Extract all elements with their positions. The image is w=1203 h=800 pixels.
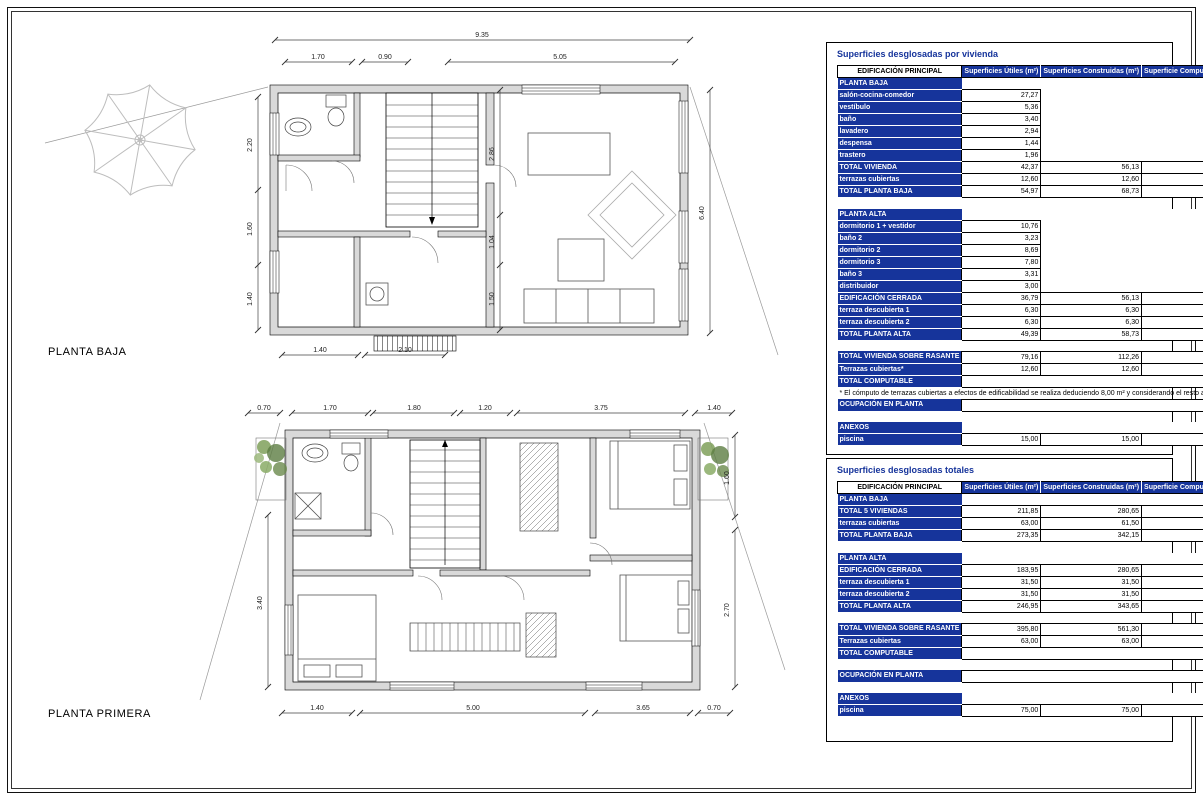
total-row: TOTAL VIVIENDA42,3756,1356,13: [838, 162, 1203, 174]
per-dwelling-table: EDIFICACIÓN PRINCIPALSuperficies Útiles …: [837, 65, 1172, 446]
row-label: ANEXOS: [838, 693, 962, 705]
dimension-label: 9.35: [475, 32, 489, 39]
cell-utiles: [962, 494, 1041, 506]
wardrobe: [520, 443, 558, 531]
stairs: [386, 93, 478, 227]
cell-construidas: 280,65: [1041, 564, 1142, 576]
terrace-hatch: [374, 336, 456, 351]
row-label: TOTAL 5 VIVIENDAS: [838, 506, 962, 518]
total-row: TOTAL VIVIENDA SOBRE RASANTE79,16112,261…: [838, 351, 1203, 363]
cell-utiles: 7,80: [962, 256, 1041, 268]
row-label: TOTAL PLANTA ALTA: [838, 328, 962, 340]
row-label: TOTAL PLANTA BAJA: [838, 186, 962, 198]
cell-construidas: [1041, 693, 1142, 705]
cell-construidas: 561,30: [1041, 623, 1142, 635]
row-label: terraza descubierta 1: [838, 304, 962, 316]
item-row: distribuidor3,00: [838, 280, 1203, 292]
total-row: TOTAL PLANTA ALTA246,95343,65259,25: [838, 600, 1203, 612]
total-row: TOTAL VIVIENDA SOBRE RASANTE395,80561,30…: [838, 623, 1203, 635]
row-label: TOTAL COMPUTABLE: [838, 647, 962, 659]
merged-total-row: OCUPACIÓN EN PLANTA68,90: [838, 399, 1203, 411]
section-row: ANEXOS: [838, 693, 1203, 705]
stairs: [410, 440, 480, 568]
cell-utiles: [962, 422, 1041, 434]
row-label: ANEXOS: [838, 422, 962, 434]
cell-computable: 259,25: [1142, 600, 1203, 612]
cell-construidas: 6,30: [1041, 316, 1142, 328]
cell-construidas: 342,15: [1041, 530, 1142, 542]
cell-computable: 0,00: [1142, 434, 1203, 446]
dimension-label: 1.60: [724, 471, 731, 485]
row-label: terrazas cubiertas: [838, 174, 962, 186]
row-label: PLANTA BAJA: [838, 78, 962, 90]
value-column-header: Superficie Computable (m²t): [1142, 66, 1203, 78]
row-label: PLANTA ALTA: [838, 553, 962, 565]
dimension-label: 3.40: [257, 596, 264, 610]
cell-computable: 0,00: [1142, 576, 1203, 588]
cell-computable: 11,50: [1142, 635, 1203, 647]
row-label: terraza descubierta 2: [838, 316, 962, 328]
cell-computable: [1142, 138, 1203, 150]
cell-construidas: 56,13: [1041, 162, 1142, 174]
cell-utiles: 3,40: [962, 114, 1041, 126]
row-label: distribuidor: [838, 280, 962, 292]
cell-construidas: [1041, 102, 1142, 114]
cell-construidas: 112,26: [1041, 351, 1142, 363]
cell-utiles: 42,37: [962, 162, 1041, 174]
item-row: trastero1,96: [838, 150, 1203, 162]
wardrobe-hangers: [410, 623, 520, 651]
section-row: ANEXOS: [838, 422, 1203, 434]
dimension-label: 0.90: [378, 54, 392, 61]
item-row: Terrazas cubiertas*12,6012,602,30: [838, 363, 1203, 375]
cell-computable: [1142, 553, 1203, 565]
total-row: TOTAL 5 VIVIENDAS211,85280,65280,65: [838, 506, 1203, 518]
spacer-row: [838, 340, 1203, 351]
cell-construidas: [1041, 280, 1142, 292]
row-label: OCUPACIÓN EN PLANTA: [838, 670, 962, 682]
cell-utiles: 5,36: [962, 102, 1041, 114]
cell-utiles: [962, 78, 1041, 90]
wardrobe: [526, 613, 556, 657]
edificacion-principal-header: EDIFICACIÓN PRINCIPAL: [838, 482, 962, 494]
cell-utiles: 54,97: [962, 186, 1041, 198]
item-row: terrazas cubiertas12,6012,602,30: [838, 174, 1203, 186]
cell-computable: [1142, 78, 1203, 90]
cell-computable: [1142, 90, 1203, 102]
cell-utiles: 12,60: [962, 363, 1041, 375]
sink-icon: [302, 444, 328, 462]
row-label: dormitorio 2: [838, 244, 962, 256]
table-header-row: EDIFICACIÓN PRINCIPALSuperficies Útiles …: [838, 66, 1203, 78]
row-label: Terrazas cubiertas*: [838, 363, 962, 375]
row-label: piscina: [838, 434, 962, 446]
item-row: vestíbulo5,36: [838, 102, 1203, 114]
cell-computable: [1142, 268, 1203, 280]
cell-utiles: 1,44: [962, 138, 1041, 150]
total-row: TOTAL PLANTA BAJA54,9768,7358,43: [838, 186, 1203, 198]
dimension-label: 1.60: [247, 222, 254, 236]
dimension-label: 1.20: [478, 405, 492, 412]
section-row: PLANTA ALTA: [838, 553, 1203, 565]
value-column-header: Superficies Útiles (m²): [962, 482, 1041, 494]
dimension-label: 5.00: [466, 705, 480, 712]
row-label: vestíbulo: [838, 102, 962, 114]
row-label: OCUPACIÓN EN PLANTA: [838, 399, 962, 411]
row-label: trastero: [838, 150, 962, 162]
row-label: TOTAL PLANTA ALTA: [838, 600, 962, 612]
cell-construidas: 68,73: [1041, 186, 1142, 198]
cell-construidas: 343,65: [1041, 600, 1142, 612]
item-row: despensa1,44: [838, 138, 1203, 150]
dimension-label: 1.40: [313, 347, 327, 354]
cell-computable: [1142, 114, 1203, 126]
section-row: PLANTA BAJA: [838, 494, 1203, 506]
cell-computable: [1142, 102, 1203, 114]
row-label: PLANTA ALTA: [838, 209, 962, 221]
cell-utiles: 8,69: [962, 244, 1041, 256]
section-row: PLANTA ALTA: [838, 209, 1203, 221]
item-row: baño 33,31: [838, 268, 1203, 280]
cell-computable: [1142, 280, 1203, 292]
cell-computable: [1142, 209, 1203, 221]
row-label: TOTAL VIVIENDA SOBRE RASANTE: [838, 623, 962, 635]
cell-computable: 2,30: [1142, 174, 1203, 186]
cell-construidas: 6,30: [1041, 304, 1142, 316]
cell-construidas: [1041, 78, 1142, 90]
cell-construidas: [1041, 232, 1142, 244]
cell-computable: [1142, 422, 1203, 434]
spacer-row: [838, 659, 1203, 670]
cell-construidas: 63,00: [1041, 635, 1142, 647]
cell-utiles: 3,23: [962, 232, 1041, 244]
cell-construidas: [1041, 138, 1142, 150]
dimension-label: 1.40: [247, 292, 254, 306]
cell-construidas: 12,60: [1041, 363, 1142, 375]
item-row: dormitorio 28,69: [838, 244, 1203, 256]
row-label: lavadero: [838, 126, 962, 138]
cell-computable: [1142, 232, 1203, 244]
item-row: Terrazas cubiertas63,0063,0011,50: [838, 635, 1203, 647]
table-header-row: EDIFICACIÓN PRINCIPALSuperficies Útiles …: [838, 482, 1203, 494]
item-row: piscina75,0075,000,00: [838, 705, 1203, 717]
cell-utiles: 63,00: [962, 635, 1041, 647]
item-row: terrazas cubiertas63,0061,5011,50: [838, 518, 1203, 530]
dimension-label: 3.75: [594, 405, 608, 412]
total-row: TOTAL PLANTA BAJA273,35342,15292,15: [838, 530, 1203, 542]
item-row: dormitorio 1 + vestidor10,76: [838, 220, 1203, 232]
cell-construidas: [1041, 268, 1142, 280]
parcel-boundary-line: [45, 87, 268, 143]
row-label: baño 2: [838, 232, 962, 244]
cell-computable: 0,00: [1142, 588, 1203, 600]
cell-construidas: [1041, 244, 1142, 256]
cell-computable: [1142, 126, 1203, 138]
cell-utiles: [962, 693, 1041, 705]
value-column-header: Superficies Construidas (m²): [1041, 482, 1142, 494]
spacer-row: [838, 612, 1203, 623]
cell-construidas: [1041, 126, 1142, 138]
spacer-row: [838, 682, 1203, 693]
cell-utiles: 15,00: [962, 434, 1041, 446]
total-row: TOTAL PLANTA ALTA49,3958,7351,85: [838, 328, 1203, 340]
cell-utiles: 31,50: [962, 588, 1041, 600]
value-column-header: Superficies Construidas (m²): [1041, 66, 1142, 78]
planta-primera-building: [254, 430, 729, 690]
sink-icon: [285, 118, 311, 136]
planta-primera-plan: 0.70 1.70 1.80 1.20 3.75 1.40 1.40 5.00 …: [30, 395, 820, 740]
row-label: TOTAL VIVIENDA SOBRE RASANTE: [838, 351, 962, 363]
spacer-row: [838, 411, 1203, 422]
row-label: terrazas cubiertas: [838, 518, 962, 530]
cell-utiles: [962, 553, 1041, 565]
dimension-label: 1.40: [707, 405, 721, 412]
parasol-icon: [85, 85, 195, 195]
cell-construidas: 61,50: [1041, 518, 1142, 530]
item-row: terraza descubierta 131,5031,500,00: [838, 576, 1203, 588]
totals-surfaces-panel: Superficies desglosadas totales EDIFICAC…: [826, 458, 1173, 742]
cell-utiles: 3,31: [962, 268, 1041, 280]
cell-computable: 51,85: [1142, 292, 1203, 304]
cell-construidas: [1041, 220, 1142, 232]
cell-construidas: 31,50: [1041, 576, 1142, 588]
merged-value: 551,40: [962, 647, 1203, 659]
plan-title-planta-primera: PLANTA PRIMERA: [48, 708, 151, 720]
dimension-label: 5.05: [553, 54, 567, 61]
merged-value: 110,28: [962, 375, 1203, 387]
cell-utiles: 31,50: [962, 576, 1041, 588]
row-label: PLANTA BAJA: [838, 494, 962, 506]
cell-construidas: 12,60: [1041, 174, 1142, 186]
row-label: piscina: [838, 705, 962, 717]
item-row: baño3,40: [838, 114, 1203, 126]
cell-construidas: 75,00: [1041, 705, 1142, 717]
spacer-row: [838, 542, 1203, 553]
cell-construidas: [1041, 553, 1142, 565]
row-label: baño 3: [838, 268, 962, 280]
shower: [295, 493, 321, 519]
row-label: EDIFICACIÓN CERRADA: [838, 292, 962, 304]
cell-utiles: 273,35: [962, 530, 1041, 542]
dimension-label: 1.40: [310, 705, 324, 712]
cell-construidas: [1041, 209, 1142, 221]
dimension-label: 1.80: [407, 405, 421, 412]
surface-table: EDIFICACIÓN PRINCIPALSuperficies Útiles …: [837, 481, 1203, 717]
item-row: piscina15,0015,000,00: [838, 434, 1203, 446]
merged-total-row: OCUPACIÓN EN PLANTA344,50: [838, 670, 1203, 682]
cell-utiles: 49,39: [962, 328, 1041, 340]
cell-computable: 107,98: [1142, 351, 1203, 363]
planta-baja-building: [270, 85, 688, 351]
value-column-header: Superficies Útiles (m²): [962, 66, 1041, 78]
cell-computable: 56,13: [1142, 162, 1203, 174]
cell-computable: [1142, 220, 1203, 232]
cell-computable: [1142, 244, 1203, 256]
dimension-label: 0.70: [707, 705, 721, 712]
cell-construidas: 58,73: [1041, 328, 1142, 340]
row-label: Terrazas cubiertas: [838, 635, 962, 647]
cell-utiles: 246,95: [962, 600, 1041, 612]
footnote: * El cómputo de terrazas cubiertas a efe…: [838, 387, 1203, 399]
note-row: * El cómputo de terrazas cubiertas a efe…: [838, 387, 1203, 399]
dimension-label: 1.70: [311, 54, 325, 61]
merged-total-row: TOTAL COMPUTABLE551,40: [838, 647, 1203, 659]
item-row: terraza descubierta 231,5031,500,00: [838, 588, 1203, 600]
total-row: EDIFICACIÓN CERRADA36,7956,1351,85: [838, 292, 1203, 304]
row-label: terraza descubierta 2: [838, 588, 962, 600]
cell-computable: [1142, 693, 1203, 705]
totals-table: EDIFICACIÓN PRINCIPALSuperficies Útiles …: [837, 481, 1172, 717]
cell-construidas: [1041, 494, 1142, 506]
total-row: EDIFICACIÓN CERRADA183,95280,65259,25: [838, 564, 1203, 576]
table-title: Superficies desglosadas por vivienda: [837, 49, 1172, 59]
cell-computable: [1142, 150, 1203, 162]
dimension-label: 1.04: [489, 235, 496, 249]
section-row: PLANTA BAJA: [838, 78, 1203, 90]
cell-utiles: 27,27: [962, 90, 1041, 102]
dimension-label: 6.40: [699, 206, 706, 220]
dimension-label: 1.50: [489, 292, 496, 306]
plan-title-planta-baja: PLANTA BAJA: [48, 346, 127, 358]
item-row: terraza descubierta 26,306,300,00: [838, 316, 1203, 328]
cell-computable: 539,90: [1142, 623, 1203, 635]
cell-utiles: 3,00: [962, 280, 1041, 292]
merged-value: 68,90: [962, 399, 1203, 411]
cell-utiles: 2,94: [962, 126, 1041, 138]
dimension-label: 1.70: [323, 405, 337, 412]
cell-utiles: 183,95: [962, 564, 1041, 576]
cell-computable: 51,85: [1142, 328, 1203, 340]
cell-computable: 292,15: [1142, 530, 1203, 542]
cell-utiles: 1,96: [962, 150, 1041, 162]
planta-baja-plan: 9.35 1.70 0.90 5.05 2.20 1.60 1.40 2.86 …: [30, 15, 820, 383]
row-label: terraza descubierta 1: [838, 576, 962, 588]
row-label: dormitorio 3: [838, 256, 962, 268]
cell-computable: [1142, 256, 1203, 268]
cell-computable: 0,00: [1142, 304, 1203, 316]
per-dwelling-surfaces-panel: Superficies desglosadas por vivienda EDI…: [826, 42, 1173, 455]
cell-computable: 2,30: [1142, 363, 1203, 375]
cell-computable: 0,00: [1142, 705, 1203, 717]
cell-construidas: 56,13: [1041, 292, 1142, 304]
cell-construidas: [1041, 150, 1142, 162]
item-row: lavadero2,94: [838, 126, 1203, 138]
spacer-row: [838, 198, 1203, 209]
dimension-label: 2.70: [724, 603, 731, 617]
cell-construidas: 280,65: [1041, 506, 1142, 518]
surface-table: EDIFICACIÓN PRINCIPALSuperficies Útiles …: [837, 65, 1203, 446]
cell-utiles: 211,85: [962, 506, 1041, 518]
row-label: baño: [838, 114, 962, 126]
dimension-label: 2.20: [247, 138, 254, 152]
value-column-header: Superficie Computable (m²t): [1142, 482, 1203, 494]
row-label: dormitorio 1 + vestidor: [838, 220, 962, 232]
item-row: baño 23,23: [838, 232, 1203, 244]
dimension-label: 3.65: [636, 705, 650, 712]
cell-construidas: [1041, 114, 1142, 126]
row-label: TOTAL VIVIENDA: [838, 162, 962, 174]
merged-value: 344,50: [962, 670, 1203, 682]
row-label: TOTAL PLANTA BAJA: [838, 530, 962, 542]
row-label: salón-cocina-comedor: [838, 90, 962, 102]
cell-construidas: 31,50: [1041, 588, 1142, 600]
cell-utiles: 12,60: [962, 174, 1041, 186]
item-row: dormitorio 37,80: [838, 256, 1203, 268]
dimension-label: 2.86: [489, 147, 496, 161]
edificacion-principal-header: EDIFICACIÓN PRINCIPAL: [838, 66, 962, 78]
cell-construidas: [1041, 422, 1142, 434]
cell-construidas: 15,00: [1041, 434, 1142, 446]
parcel-boundary-line: [690, 87, 778, 355]
cell-utiles: 79,16: [962, 351, 1041, 363]
cell-construidas: [1041, 256, 1142, 268]
item-row: terraza descubierta 16,306,300,00: [838, 304, 1203, 316]
cell-utiles: 75,00: [962, 705, 1041, 717]
cell-construidas: [1041, 90, 1142, 102]
cell-computable: 11,50: [1142, 518, 1203, 530]
table-title: Superficies desglosadas totales: [837, 465, 1172, 475]
cell-computable: 58,43: [1142, 186, 1203, 198]
cell-utiles: [962, 209, 1041, 221]
row-label: despensa: [838, 138, 962, 150]
cell-utiles: 6,30: [962, 304, 1041, 316]
dimension-label: 0.70: [257, 405, 271, 412]
cell-utiles: 36,79: [962, 292, 1041, 304]
cell-utiles: 63,00: [962, 518, 1041, 530]
cell-computable: 0,00: [1142, 316, 1203, 328]
dimension-label: 2.10: [398, 347, 412, 354]
cell-utiles: 6,30: [962, 316, 1041, 328]
cell-utiles: 10,76: [962, 220, 1041, 232]
item-row: salón-cocina-comedor27,27: [838, 90, 1203, 102]
row-label: EDIFICACIÓN CERRADA: [838, 564, 962, 576]
cell-computable: 259,25: [1142, 564, 1203, 576]
cell-computable: [1142, 494, 1203, 506]
cell-computable: 280,65: [1142, 506, 1203, 518]
row-label: TOTAL COMPUTABLE: [838, 375, 962, 387]
cell-utiles: 395,80: [962, 623, 1041, 635]
merged-total-row: TOTAL COMPUTABLE110,28: [838, 375, 1203, 387]
